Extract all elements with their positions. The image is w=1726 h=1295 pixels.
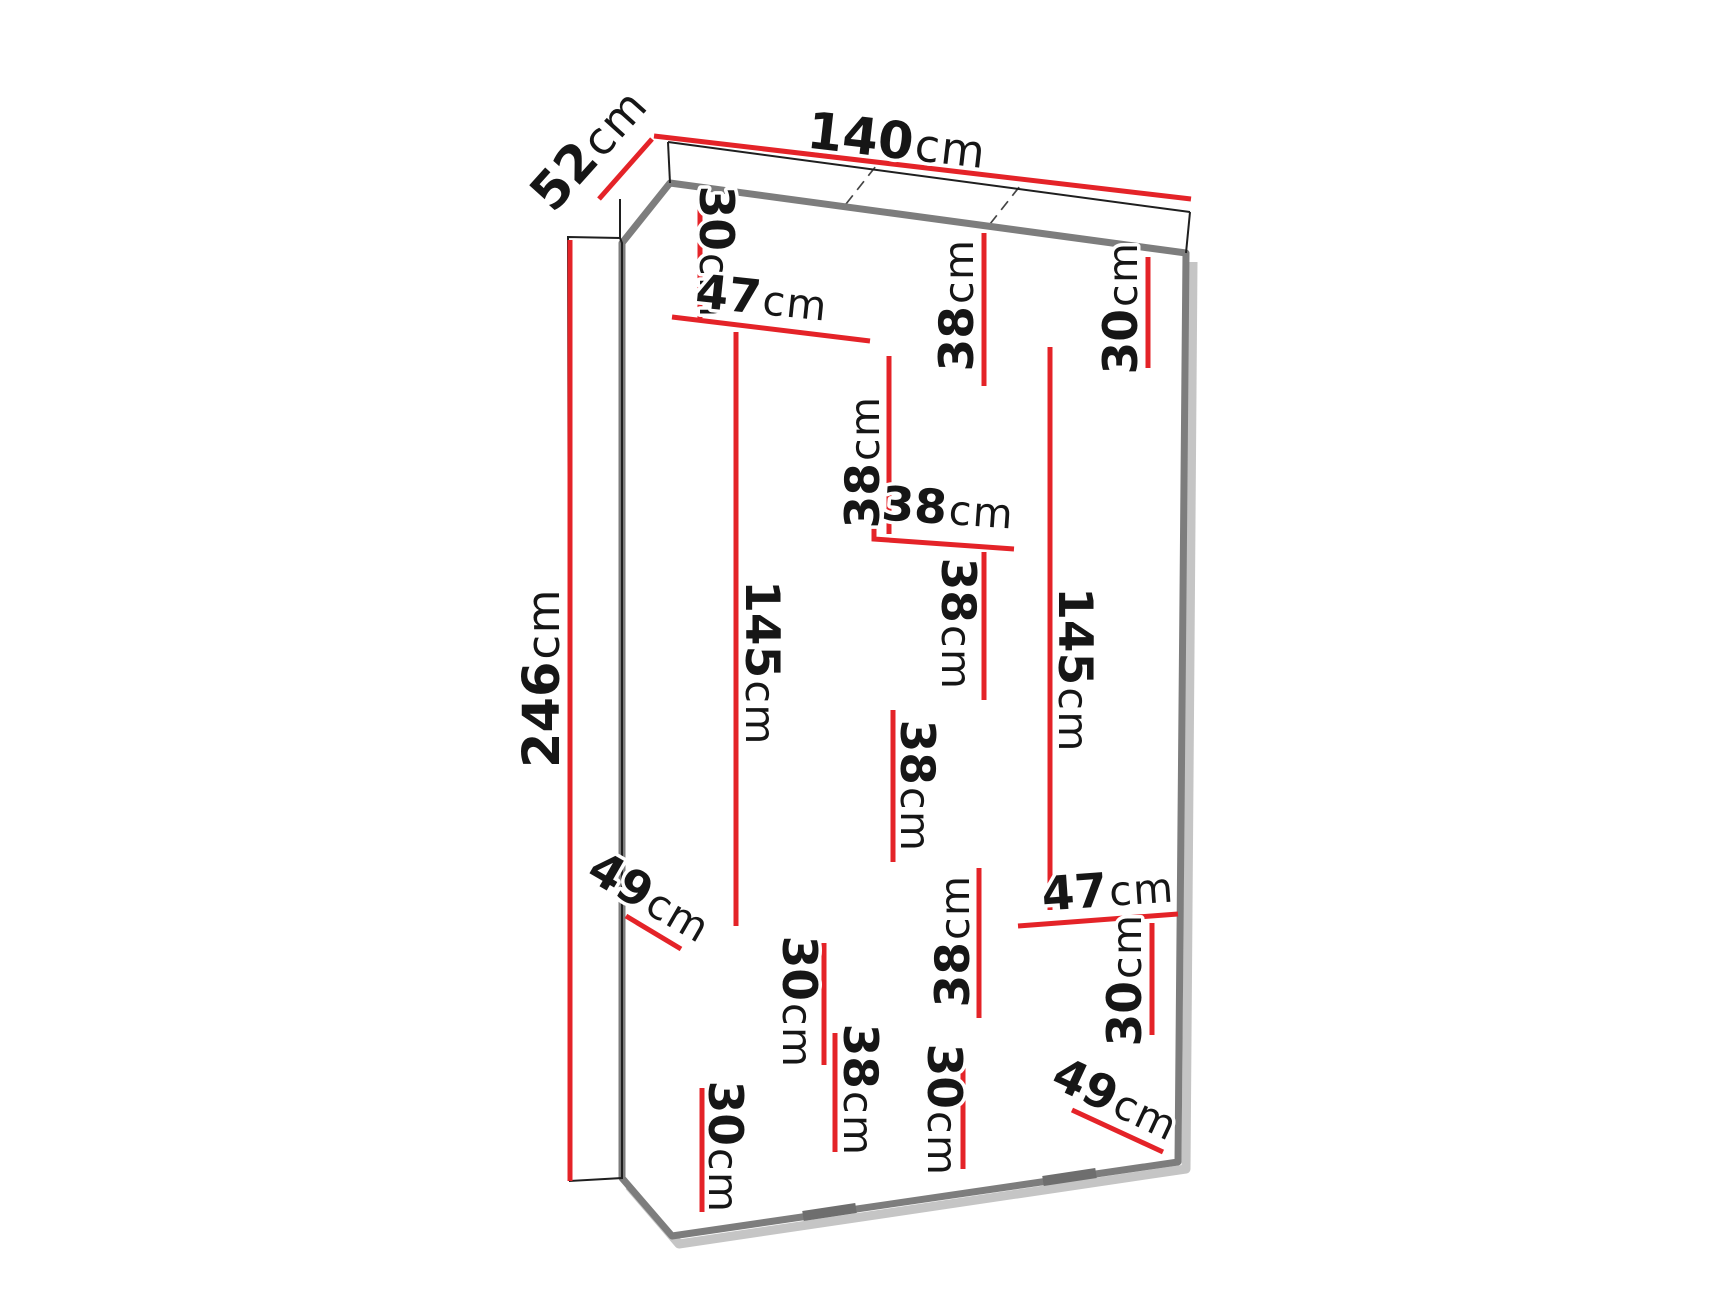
dim-label-left-bottom-30: 30cm	[697, 1081, 752, 1214]
dim-label-mid-bottom-left-38: 38cm	[832, 1024, 887, 1157]
dim-label-mid-bottom-30: 30cm	[916, 1044, 971, 1177]
dim-label-right-hanging-145: 145cm	[1047, 587, 1102, 753]
dim-label-mid-lower2-38: 38cm	[926, 875, 981, 1008]
diagram-svg: 52cm 140cm 246cm 30cm 47cm 38cm 30cm 38c…	[0, 0, 1726, 1295]
dim-label-right-top-30: 30cm	[1094, 242, 1149, 375]
dim-label-height-246: 246cm	[513, 588, 572, 768]
dim-label-left-lower-30: 30cm	[771, 936, 826, 1069]
dim-label-mid-lower-38: 38cm	[889, 720, 944, 853]
dim-label-mid-middle-38: 38cm	[930, 558, 985, 691]
dim-label-left-hanging-145: 145cm	[734, 580, 789, 746]
dim-label-right-lower-30: 30cm	[1098, 914, 1153, 1047]
dim-label-mid-top-38: 38cm	[930, 239, 985, 372]
left-side-sliver-face	[568, 237, 622, 1181]
dim-label-depth-52: 52cm	[519, 76, 660, 223]
wardrobe-dimension-diagram: 52cm 140cm 246cm 30cm 47cm 38cm 30cm 38c…	[0, 0, 1726, 1295]
